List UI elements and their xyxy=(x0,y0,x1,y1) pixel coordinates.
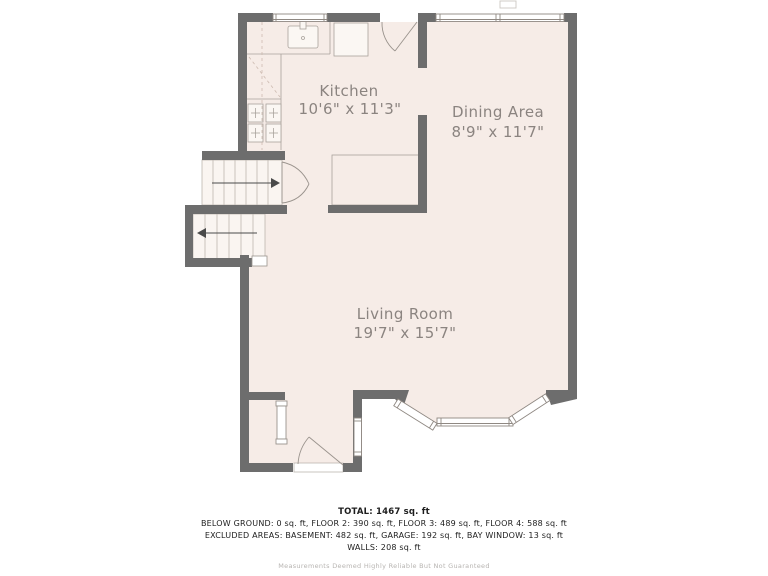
vestibule-window xyxy=(354,418,362,456)
exterior-wall-left-top xyxy=(238,13,247,151)
floor-plan-page: { "colors": { "wall": "#6d6d6d", "floor"… xyxy=(0,0,768,576)
living-bottom-wall-left xyxy=(353,390,399,399)
stair-mid-wall xyxy=(190,205,287,214)
living-room-label: Living Room xyxy=(357,305,453,323)
stair-left-wall xyxy=(185,205,193,267)
chimney-stub xyxy=(500,1,516,8)
excluded-areas: EXCLUDED AREAS: BASEMENT: 482 sq. ft, GA… xyxy=(0,530,768,542)
floor-plan: Kitchen 10'6" x 11'3" Dining Area 8'9" x… xyxy=(0,0,768,500)
living-room-dimensions: 19'7" x 15'7" xyxy=(354,324,457,342)
kitchen-dimensions: 10'6" x 11'3" xyxy=(299,100,402,118)
kitchen-peninsula xyxy=(332,155,422,205)
disclaimer: Measurements Deemed Highly Reliable But … xyxy=(0,560,768,572)
refrigerator xyxy=(334,23,368,56)
floor-areas: BELOW GROUND: 0 sq. ft, FLOOR 2: 390 sq.… xyxy=(0,518,768,530)
exterior-wall-top xyxy=(238,13,273,22)
closet-wall xyxy=(247,392,285,400)
dining-area-label: Dining Area xyxy=(452,103,544,121)
vestibule-bottom-wall-left xyxy=(240,463,293,472)
dining-window xyxy=(436,14,564,22)
dining-area-dimensions: 8'9" x 11'7" xyxy=(452,123,545,141)
kitchen-living-wall xyxy=(328,205,427,213)
wall-areas: WALLS: 208 sq. ft xyxy=(0,542,768,554)
bay-wall-stub-right xyxy=(546,390,577,405)
kitchen-dining-wall-lower xyxy=(418,115,427,213)
exterior-wall-right xyxy=(568,13,577,393)
closet-door xyxy=(276,401,287,444)
kitchen-label: Kitchen xyxy=(319,82,378,100)
stair-landing-opening xyxy=(252,256,267,266)
floor-fill xyxy=(247,22,568,463)
floor-plan-svg: Kitchen 10'6" x 11'3" Dining Area 8'9" x… xyxy=(0,0,768,500)
area-summary: TOTAL: 1467 sq. ft BELOW GROUND: 0 sq. f… xyxy=(0,506,768,572)
kitchen-window xyxy=(273,14,327,22)
total-area: TOTAL: 1467 sq. ft xyxy=(0,506,768,518)
kitchen-dining-wall-upper xyxy=(418,22,427,68)
stair-top-wall xyxy=(202,151,285,160)
exterior-wall-left-bottom xyxy=(240,255,249,472)
